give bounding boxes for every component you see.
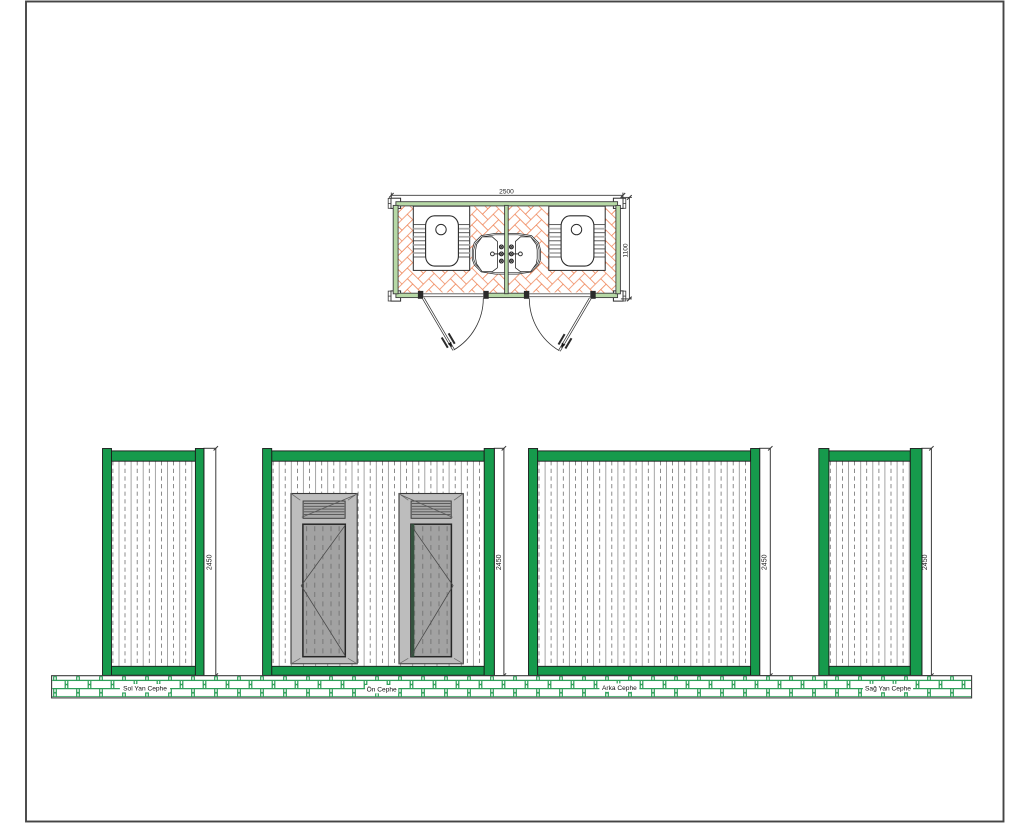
svg-text:Arka Cephe: Arka Cephe bbox=[602, 685, 637, 692]
svg-text:1100: 1100 bbox=[623, 243, 630, 258]
svg-text:2450: 2450 bbox=[207, 554, 214, 570]
svg-text:Ön Cephe: Ön Cephe bbox=[367, 686, 397, 694]
svg-text:2450: 2450 bbox=[496, 554, 503, 570]
svg-text:2450: 2450 bbox=[922, 554, 929, 570]
svg-text:2500: 2500 bbox=[499, 189, 514, 196]
svg-text:Sağ Yan Cephe: Sağ Yan Cephe bbox=[865, 685, 911, 692]
svg-text:Sol Yan Cephe: Sol Yan Cephe bbox=[123, 686, 167, 693]
svg-text:2450: 2450 bbox=[761, 554, 768, 570]
